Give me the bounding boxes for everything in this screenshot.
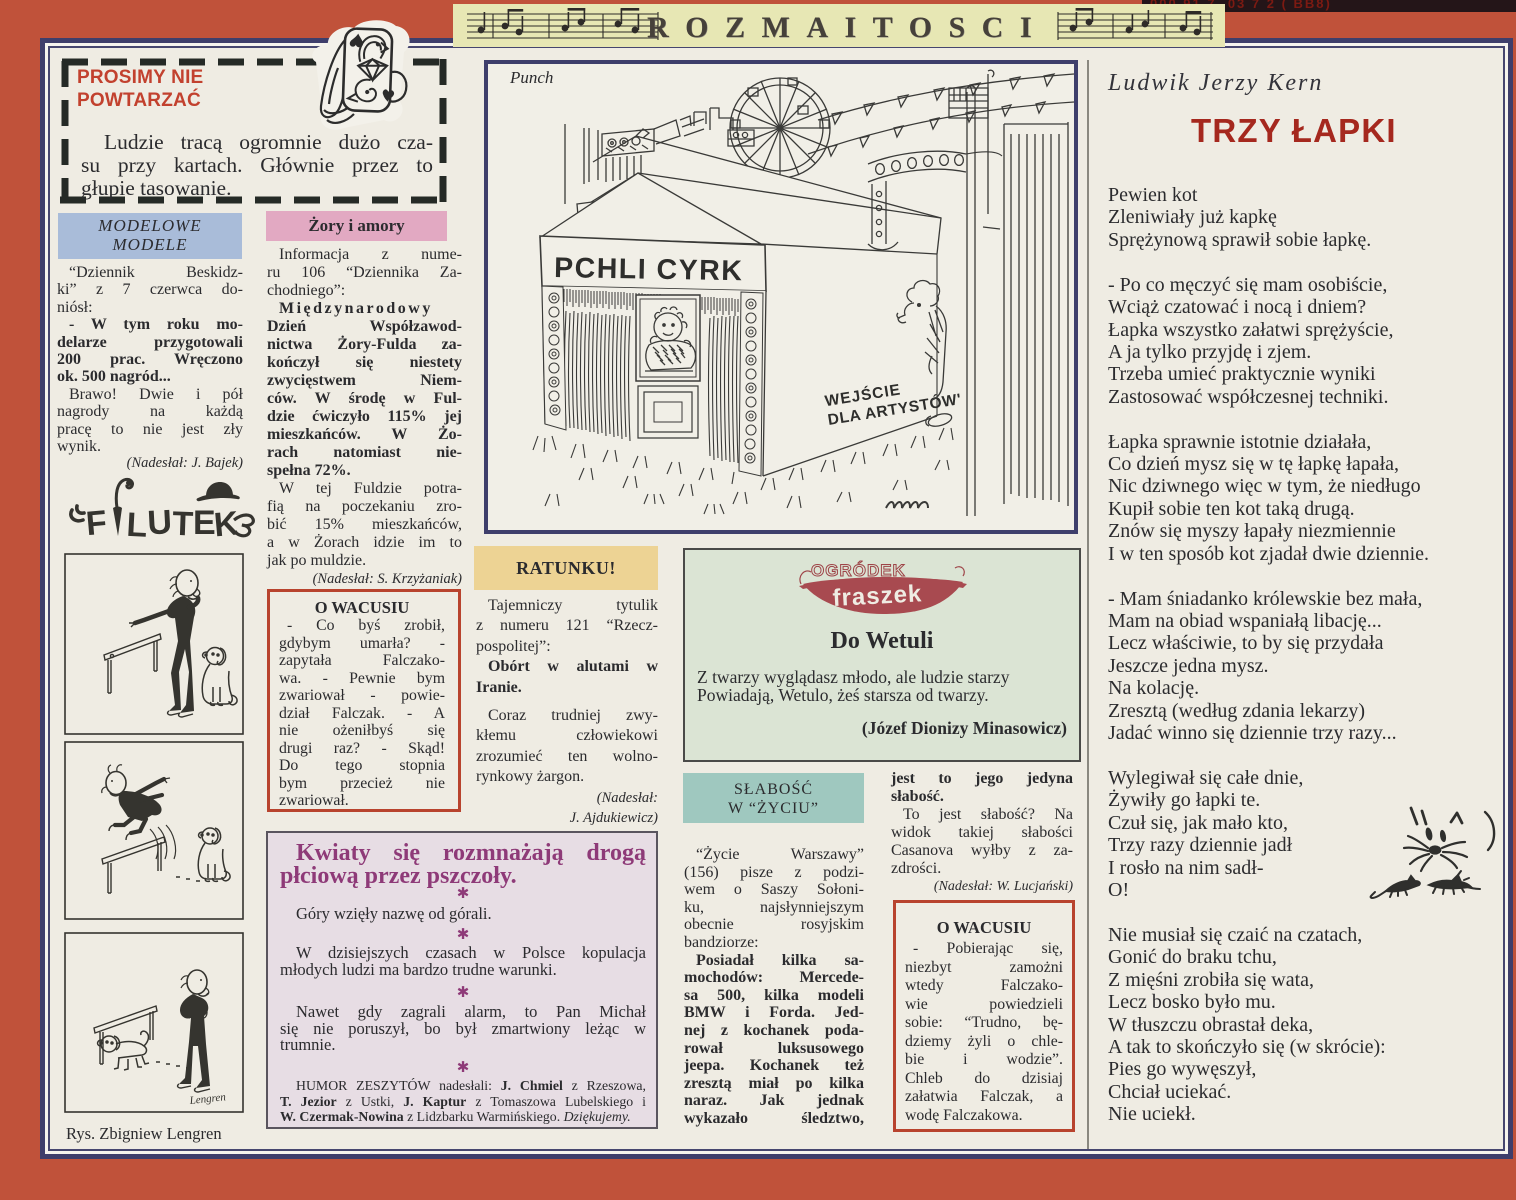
svg-text:PCHLI CYRK: PCHLI CYRK (554, 252, 744, 287)
svg-text:fraszek: fraszek (832, 580, 923, 612)
svg-text:OGRÓDEK: OGRÓDEK (811, 561, 906, 580)
svg-text:U: U (146, 503, 173, 542)
svg-text:L: L (126, 506, 149, 545)
svg-text:F: F (84, 504, 108, 544)
svg-text:K: K (212, 504, 240, 544)
svg-text:T: T (172, 505, 194, 544)
